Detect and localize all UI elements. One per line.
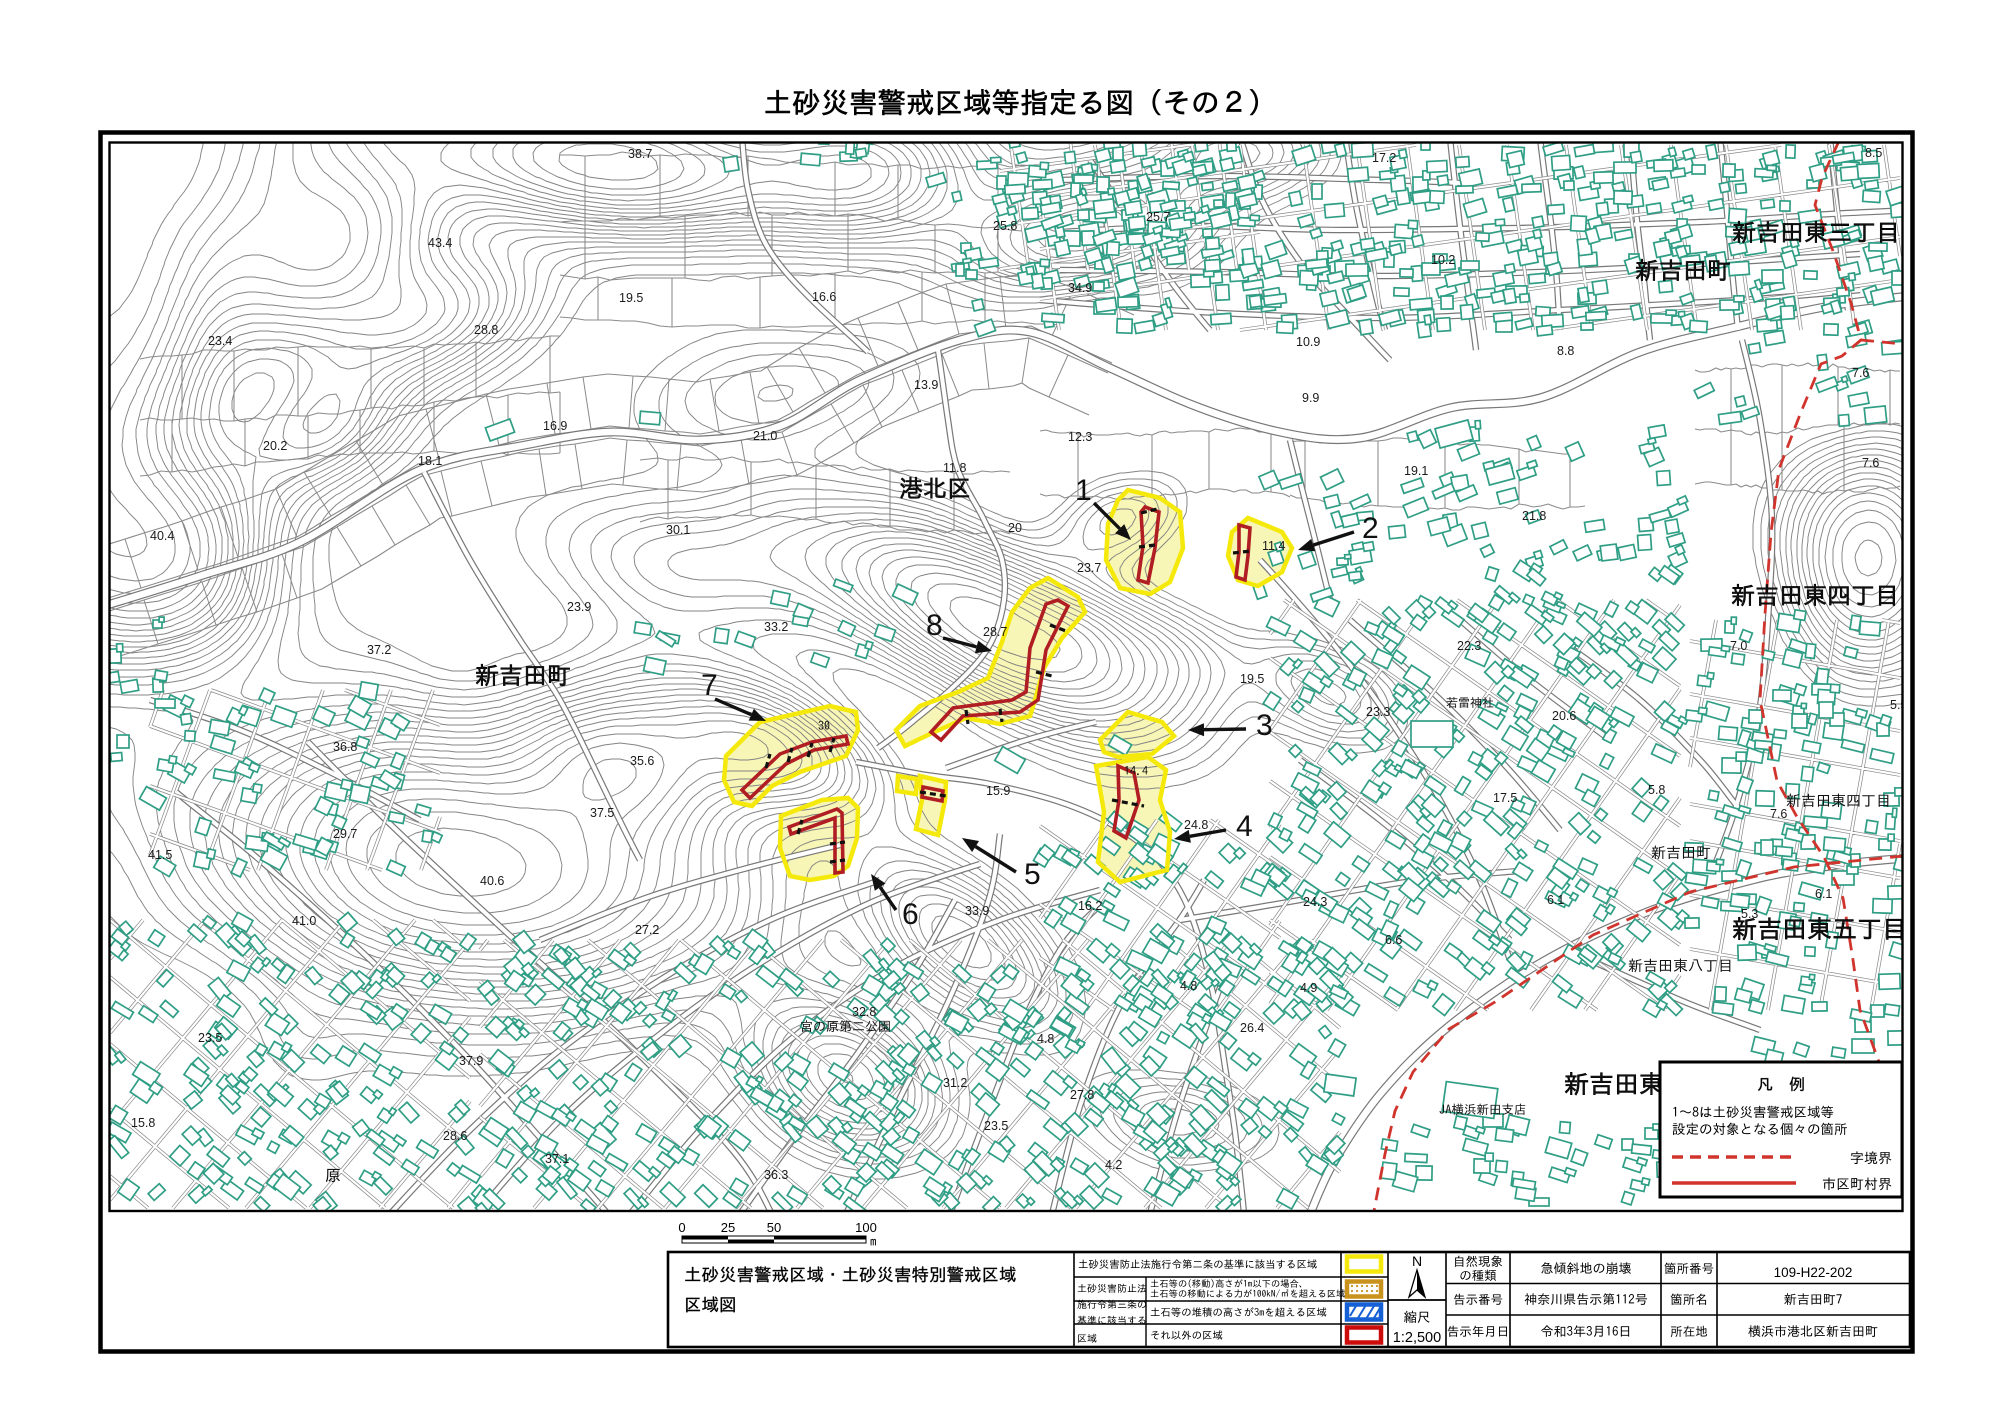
svg-text:4.9: 4.9 (1300, 981, 1317, 995)
svg-text:2: 2 (1362, 512, 1379, 545)
svg-text:9.9: 9.9 (1302, 391, 1319, 405)
svg-text:23.5: 23.5 (198, 1031, 222, 1045)
svg-text:7.6: 7.6 (1862, 456, 1879, 470)
svg-text:28.7: 28.7 (983, 625, 1007, 639)
svg-text:7.6: 7.6 (1770, 807, 1787, 821)
svg-text:33.2: 33.2 (764, 620, 788, 634)
svg-text:1: 1 (1075, 474, 1092, 507)
svg-text:38.7: 38.7 (628, 147, 652, 161)
svg-text:17.2: 17.2 (1372, 151, 1396, 165)
svg-text:16.9: 16.9 (543, 419, 567, 433)
svg-text:8.5: 8.5 (1865, 146, 1882, 160)
svg-text:16.6: 16.6 (812, 290, 836, 304)
svg-text:21.8: 21.8 (1522, 509, 1546, 523)
svg-text:13.9: 13.9 (914, 378, 938, 392)
svg-text:29.7: 29.7 (333, 827, 357, 841)
svg-text:4: 4 (1236, 810, 1253, 843)
svg-text:19.5: 19.5 (1240, 672, 1264, 686)
svg-text:21.0: 21.0 (753, 429, 777, 443)
svg-text:32.8: 32.8 (852, 1005, 876, 1019)
svg-text:7.0: 7.0 (1730, 639, 1747, 653)
svg-text:100: 100 (855, 1220, 877, 1235)
svg-text:28.8: 28.8 (474, 323, 498, 337)
svg-text:40.4: 40.4 (150, 529, 174, 543)
svg-text:15.8: 15.8 (131, 1116, 155, 1130)
svg-text:34.9: 34.9 (1068, 281, 1092, 295)
svg-text:28.6: 28.6 (443, 1129, 467, 1143)
svg-text:35.6: 35.6 (630, 754, 654, 768)
svg-text:18.1: 18.1 (418, 454, 442, 468)
svg-text:10.9: 10.9 (1296, 335, 1320, 349)
svg-text:24.3: 24.3 (1303, 895, 1327, 909)
svg-text:5: 5 (1024, 858, 1041, 891)
svg-text:25.8: 25.8 (993, 219, 1017, 233)
svg-text:43.4: 43.4 (428, 236, 452, 250)
svg-text:23.3: 23.3 (1366, 705, 1390, 719)
svg-text:4.8: 4.8 (1037, 1032, 1054, 1046)
svg-text:16.2: 16.2 (1078, 899, 1102, 913)
svg-text:0: 0 (678, 1220, 685, 1235)
svg-text:4.8: 4.8 (1180, 979, 1197, 993)
svg-text:22.3: 22.3 (1457, 639, 1481, 653)
svg-text:23.5: 23.5 (984, 1119, 1008, 1133)
svg-text:20: 20 (1008, 521, 1022, 535)
svg-text:4.2: 4.2 (1105, 1158, 1122, 1172)
svg-text:24.8: 24.8 (1184, 818, 1208, 832)
svg-text:6.1: 6.1 (1815, 887, 1832, 901)
svg-text:10.2: 10.2 (1431, 253, 1455, 267)
svg-text:25: 25 (721, 1220, 735, 1235)
svg-text:19.1: 19.1 (1404, 464, 1428, 478)
svg-text:27.8: 27.8 (1070, 1088, 1094, 1102)
svg-text:23.7: 23.7 (1077, 561, 1101, 575)
svg-text:12.3: 12.3 (1068, 430, 1092, 444)
svg-text:17.5: 17.5 (1493, 791, 1517, 805)
svg-text:7.6: 7.6 (1852, 366, 1869, 380)
svg-text:11.4: 11.4 (1262, 539, 1285, 553)
svg-text:5.3: 5.3 (1741, 907, 1758, 921)
svg-text:23.9: 23.9 (567, 600, 591, 614)
svg-text:33.9: 33.9 (965, 904, 989, 918)
svg-text:19.5: 19.5 (619, 291, 643, 305)
svg-text:6: 6 (902, 898, 919, 931)
svg-text:37.9: 37.9 (459, 1054, 483, 1068)
svg-text:31.2: 31.2 (943, 1076, 967, 1090)
svg-text:20.6: 20.6 (1552, 709, 1576, 723)
svg-text:36.8: 36.8 (333, 740, 357, 754)
svg-text:36.3: 36.3 (764, 1168, 788, 1182)
svg-text:41.5: 41.5 (148, 848, 172, 862)
svg-text:27.2: 27.2 (635, 923, 659, 937)
svg-text:25.7: 25.7 (1146, 210, 1170, 224)
svg-text:7: 7 (701, 669, 718, 702)
svg-text:20.2: 20.2 (263, 439, 287, 453)
svg-text:37.5: 37.5 (590, 806, 614, 820)
svg-text:37.1: 37.1 (545, 1152, 569, 1166)
svg-text:N: N (1412, 1253, 1422, 1269)
svg-text:37.2: 37.2 (367, 643, 391, 657)
svg-text:1:2,500: 1:2,500 (1393, 1330, 1441, 1346)
svg-text:50: 50 (767, 1220, 781, 1235)
svg-text:26.4: 26.4 (1240, 1021, 1264, 1035)
svg-text:5.8: 5.8 (1648, 783, 1665, 797)
svg-text:23.4: 23.4 (208, 334, 232, 348)
svg-text:6.1: 6.1 (1547, 893, 1564, 907)
svg-text:8: 8 (926, 609, 943, 642)
svg-text:15.9: 15.9 (986, 784, 1010, 798)
svg-text:11.8: 11.8 (943, 461, 966, 475)
svg-text:41.0: 41.0 (292, 914, 316, 928)
svg-text:6.6: 6.6 (1385, 933, 1402, 947)
svg-text:3: 3 (1256, 709, 1273, 742)
svg-text:30.1: 30.1 (666, 523, 690, 537)
svg-text:8.8: 8.8 (1557, 344, 1574, 358)
svg-text:40.6: 40.6 (480, 874, 504, 888)
svg-text:109-H22-202: 109-H22-202 (1774, 1265, 1853, 1280)
